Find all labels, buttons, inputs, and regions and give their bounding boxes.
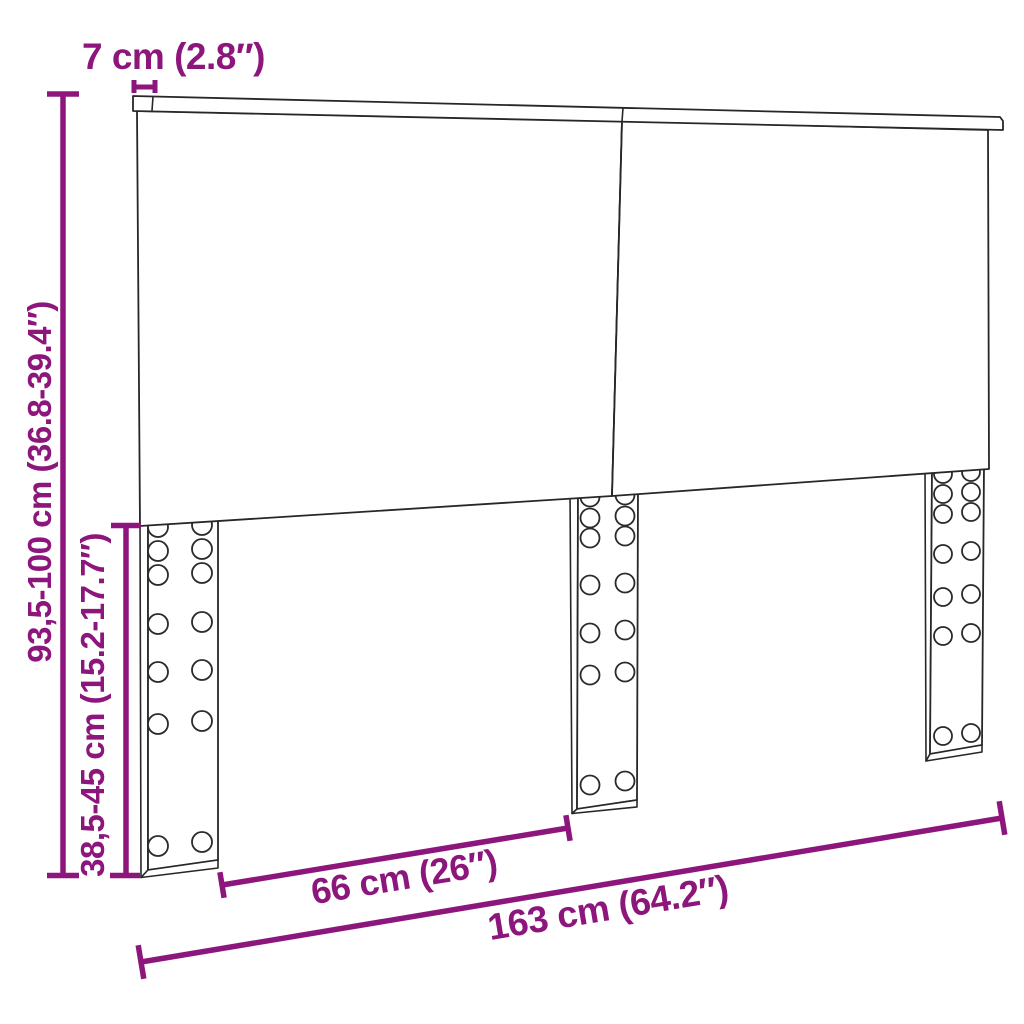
headboard-diagram-canvas: 93,5-100 cm (36.8-39.4″) 38,5-45 cm (15.… xyxy=(0,0,1024,1024)
label-leg-height: 38,5-45 cm (15.2-17.7″) xyxy=(74,533,111,877)
bolt-hole xyxy=(581,529,600,548)
bolt-hole xyxy=(616,663,635,682)
bolt-hole xyxy=(148,541,168,561)
product-dimension-diagram: 93,5-100 cm (36.8-39.4″) 38,5-45 cm (15.… xyxy=(0,0,1024,1024)
tick-left xyxy=(138,945,144,979)
bolt-hole xyxy=(148,714,168,734)
bolt-hole xyxy=(616,621,635,640)
bolt-hole xyxy=(192,660,212,680)
dimension-leg-height: 38,5-45 cm (15.2-17.7″) xyxy=(74,526,141,877)
bolt-hole xyxy=(934,627,952,645)
label-leg-spacing: 66 cm (26″) xyxy=(308,841,500,912)
leg-left xyxy=(140,513,218,878)
leg-center xyxy=(570,484,638,814)
bolt-hole xyxy=(616,772,635,791)
tick-right xyxy=(566,815,570,841)
top-rail-left-seam xyxy=(152,97,153,111)
bolt-hole xyxy=(962,624,980,642)
bolt-hole xyxy=(581,624,600,643)
bolt-hole xyxy=(934,505,952,523)
top-rail-center-seam xyxy=(622,108,623,121)
bolt-hole xyxy=(148,614,168,634)
bolt-hole xyxy=(148,565,168,585)
bolt-hole xyxy=(192,539,212,559)
bolt-hole xyxy=(148,662,168,682)
bolt-hole xyxy=(934,588,952,606)
bolt-hole xyxy=(616,507,635,526)
bolt-hole xyxy=(962,542,980,560)
headboard-panels xyxy=(137,111,989,526)
bolt-hole xyxy=(616,527,635,546)
label-rail-thickness: 7 cm (2.8″) xyxy=(82,36,265,77)
tick-right xyxy=(999,801,1005,835)
bolt-hole xyxy=(192,711,212,731)
bolt-hole xyxy=(148,836,168,856)
dimension-total-height: 93,5-100 cm (36.8-39.4″) xyxy=(21,94,79,876)
bolt-hole xyxy=(962,585,980,603)
bolt-hole xyxy=(192,612,212,632)
bolt-hole xyxy=(934,485,952,503)
bolt-hole xyxy=(934,727,952,745)
bolt-hole xyxy=(192,563,212,583)
leg-right xyxy=(925,463,984,761)
bolt-hole xyxy=(192,832,212,852)
bolt-hole xyxy=(581,666,600,685)
panel-right xyxy=(612,121,989,496)
dimension-rail-thickness: 7 cm (2.8″) xyxy=(82,36,265,93)
bolt-hole xyxy=(962,483,980,501)
bolt-hole xyxy=(581,576,600,595)
bolt-hole xyxy=(581,776,600,795)
dimension-total-width: 163 cm (64.2″) xyxy=(138,801,1005,979)
bolt-hole xyxy=(962,503,980,521)
label-total-height: 93,5-100 cm (36.8-39.4″) xyxy=(21,301,58,663)
tick-left xyxy=(220,872,224,898)
bolt-hole xyxy=(581,509,600,528)
label-total-width: 163 cm (64.2″) xyxy=(485,867,732,948)
leg-left-side-face xyxy=(140,517,148,878)
panel-left xyxy=(137,111,622,526)
bolt-hole xyxy=(934,545,952,563)
bolt-hole xyxy=(616,574,635,593)
bolt-hole xyxy=(962,724,980,742)
